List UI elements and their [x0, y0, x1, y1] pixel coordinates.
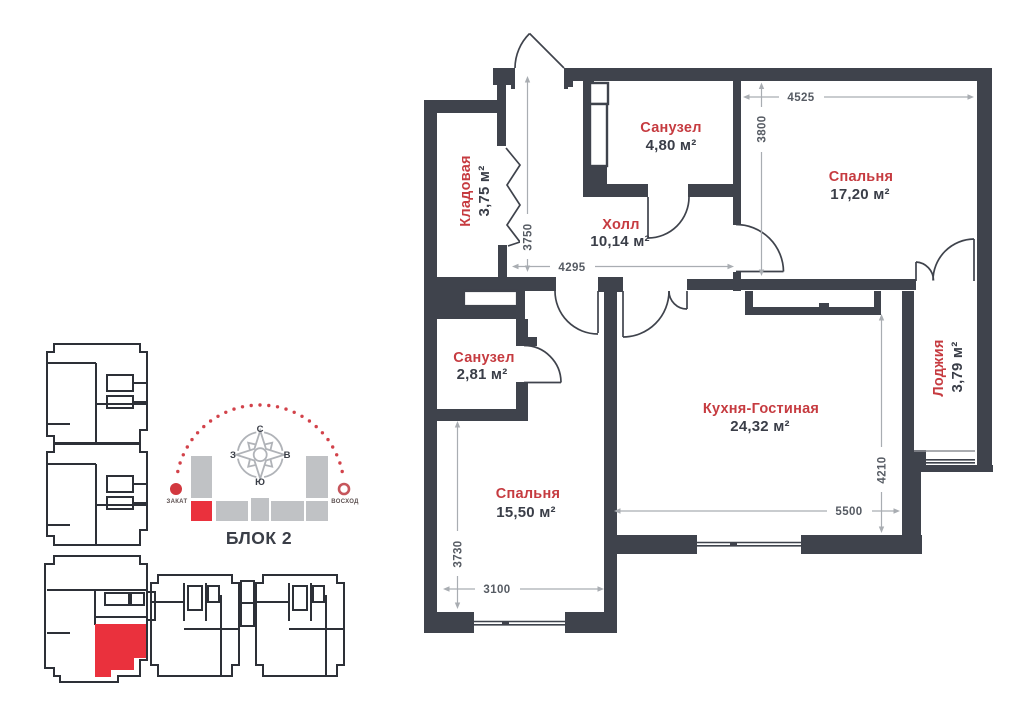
svg-text:4,80 м²: 4,80 м²: [646, 137, 697, 154]
svg-text:Ю: Ю: [255, 477, 265, 488]
svg-text:24,32 м²: 24,32 м²: [730, 418, 789, 435]
svg-text:15,50 м²: 15,50 м²: [496, 504, 555, 521]
svg-text:3730: 3730: [453, 540, 465, 567]
svg-text:Холл: Холл: [602, 217, 639, 233]
svg-text:3750: 3750: [523, 223, 535, 250]
svg-text:БЛОК 2: БЛОК 2: [226, 528, 292, 548]
svg-text:Спальня: Спальня: [496, 486, 560, 502]
svg-text:З: З: [230, 450, 236, 461]
svg-text:С: С: [257, 424, 264, 435]
svg-text:4525: 4525: [787, 92, 814, 104]
svg-text:Кладовая: Кладовая: [458, 155, 474, 226]
svg-text:В: В: [284, 450, 291, 461]
svg-text:2,81 м²: 2,81 м²: [457, 366, 508, 383]
svg-text:3800: 3800: [757, 115, 769, 142]
svg-text:Спальня: Спальня: [829, 169, 893, 185]
svg-text:4210: 4210: [877, 456, 889, 483]
svg-text:3,79 м²: 3,79 м²: [949, 342, 966, 393]
svg-text:3,75 м²: 3,75 м²: [476, 166, 493, 217]
svg-text:17,20 м²: 17,20 м²: [830, 186, 889, 203]
svg-text:ВОСХОД: ВОСХОД: [331, 499, 359, 505]
svg-text:5500: 5500: [835, 506, 862, 518]
svg-text:Санузел: Санузел: [453, 350, 514, 366]
svg-text:4295: 4295: [558, 262, 585, 274]
svg-text:ЗАКАТ: ЗАКАТ: [167, 499, 188, 505]
svg-text:Лоджия: Лоджия: [931, 339, 947, 396]
svg-text:10,14 м²: 10,14 м²: [590, 233, 649, 250]
svg-text:Санузел: Санузел: [640, 120, 701, 136]
svg-text:Кухня-Гостиная: Кухня-Гостиная: [703, 401, 819, 417]
svg-text:3100: 3100: [483, 584, 510, 596]
